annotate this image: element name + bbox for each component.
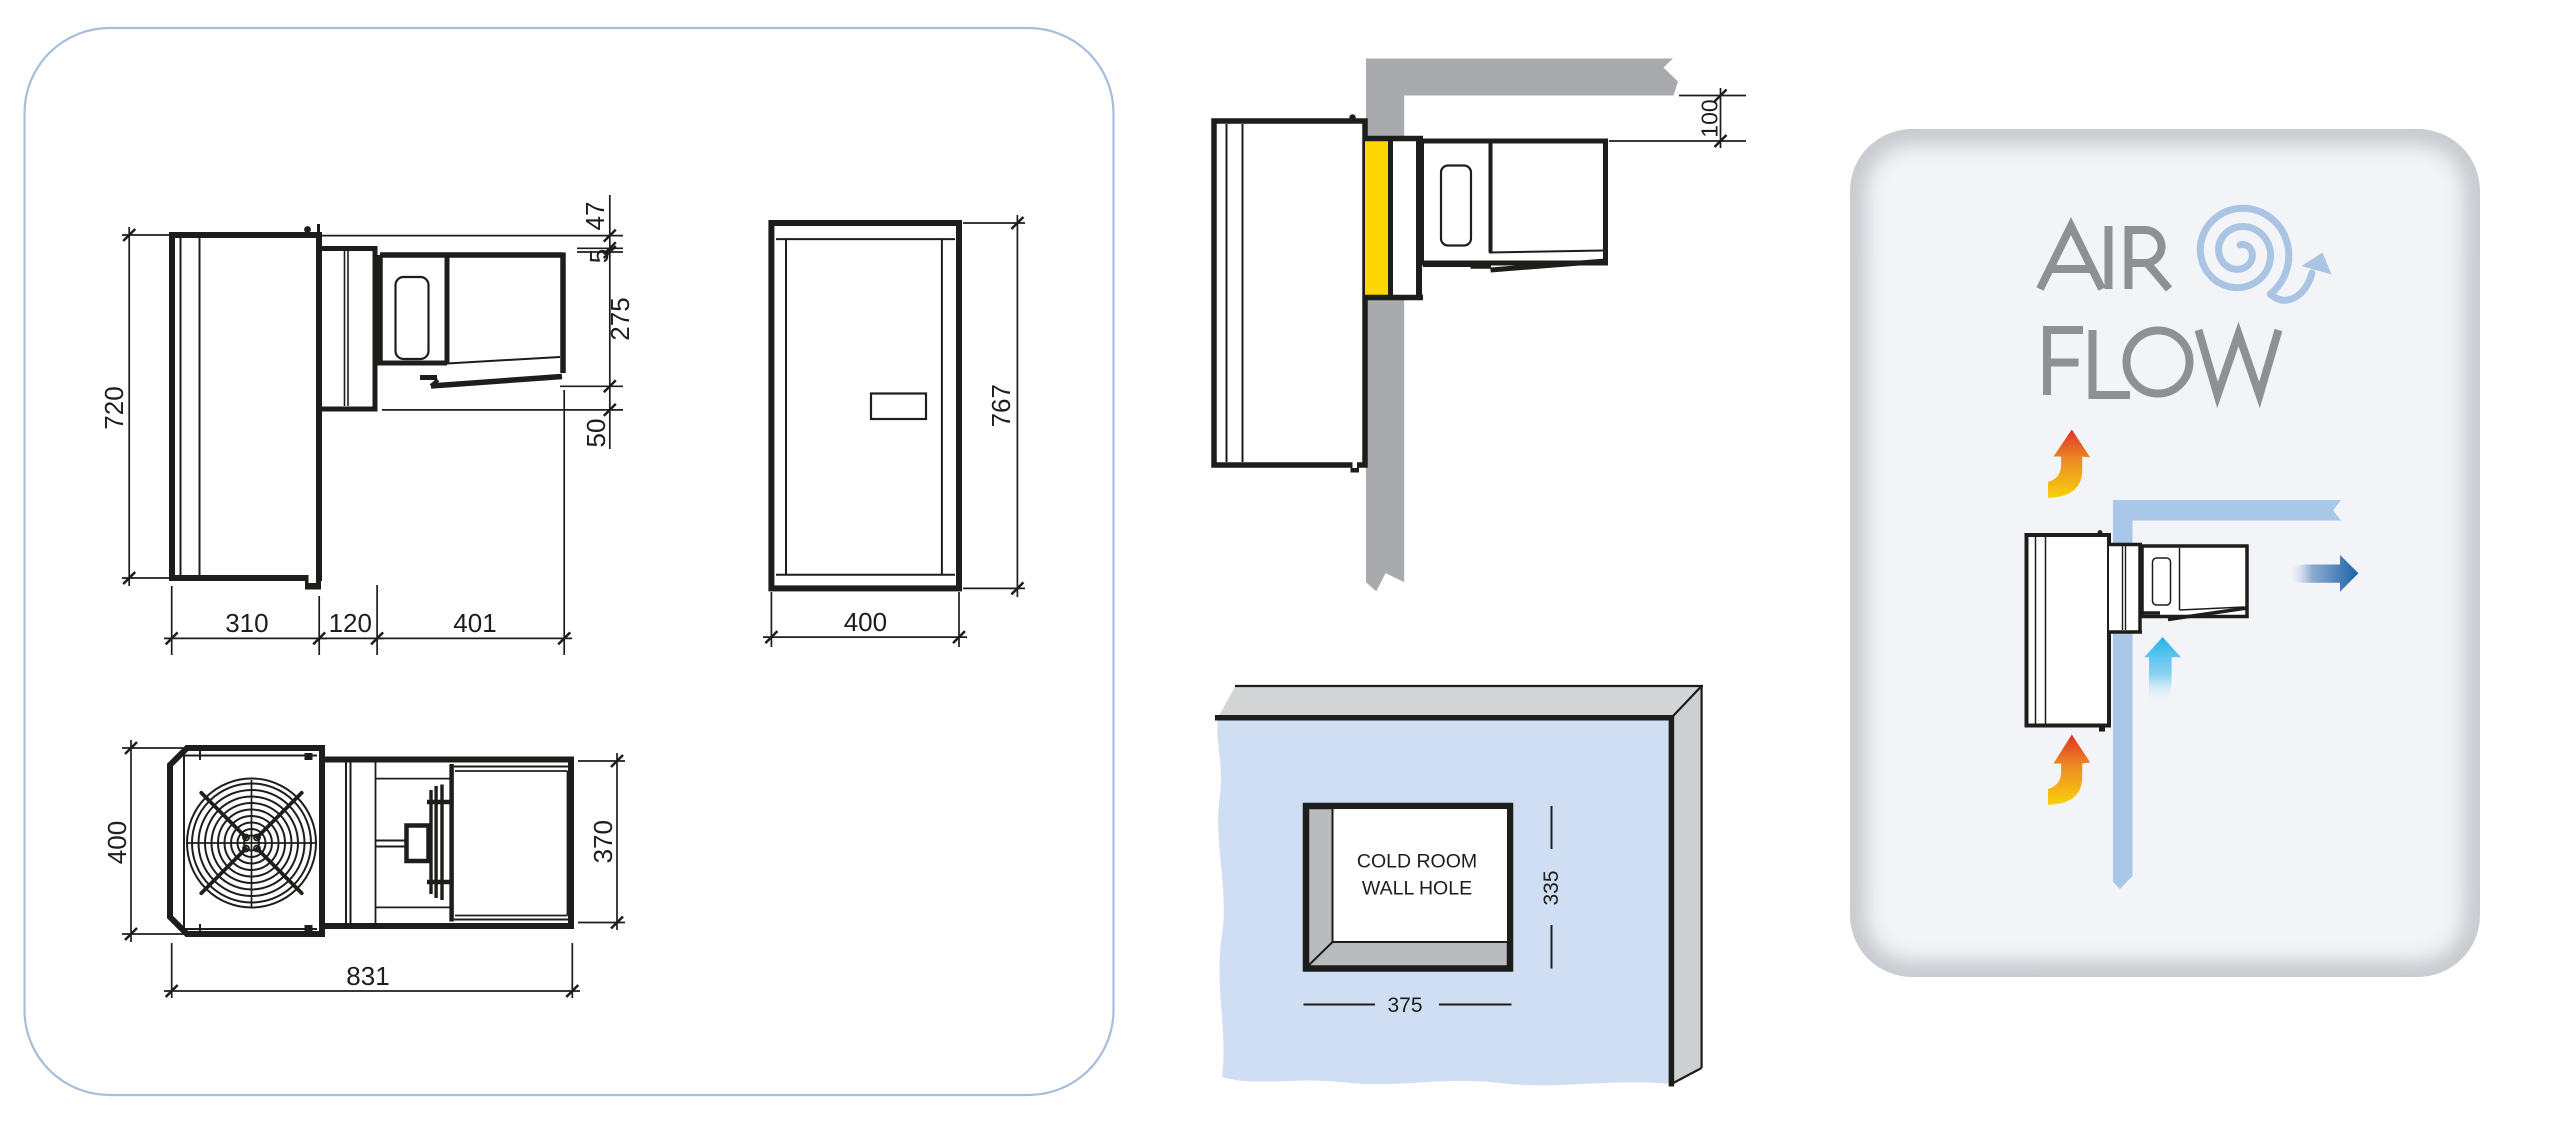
svg-text:100: 100 bbox=[1696, 99, 1722, 137]
svg-text:720: 720 bbox=[99, 386, 129, 429]
svg-text:310: 310 bbox=[225, 608, 268, 638]
svg-text:767: 767 bbox=[986, 384, 1016, 427]
svg-text:375: 375 bbox=[1387, 994, 1422, 1017]
svg-text:335: 335 bbox=[1540, 870, 1563, 905]
svg-text:5: 5 bbox=[584, 249, 614, 263]
svg-text:831: 831 bbox=[346, 961, 389, 991]
svg-text:275: 275 bbox=[605, 297, 635, 340]
svg-text:400: 400 bbox=[102, 821, 132, 864]
svg-text:COLD ROOM: COLD ROOM bbox=[1357, 851, 1477, 873]
svg-text:401: 401 bbox=[453, 608, 496, 638]
svg-text:120: 120 bbox=[329, 608, 372, 638]
svg-text:50: 50 bbox=[581, 419, 611, 448]
svg-text:WALL HOLE: WALL HOLE bbox=[1362, 878, 1472, 900]
svg-text:400: 400 bbox=[844, 607, 887, 637]
svg-text:370: 370 bbox=[588, 820, 618, 863]
svg-text:47: 47 bbox=[580, 202, 610, 231]
